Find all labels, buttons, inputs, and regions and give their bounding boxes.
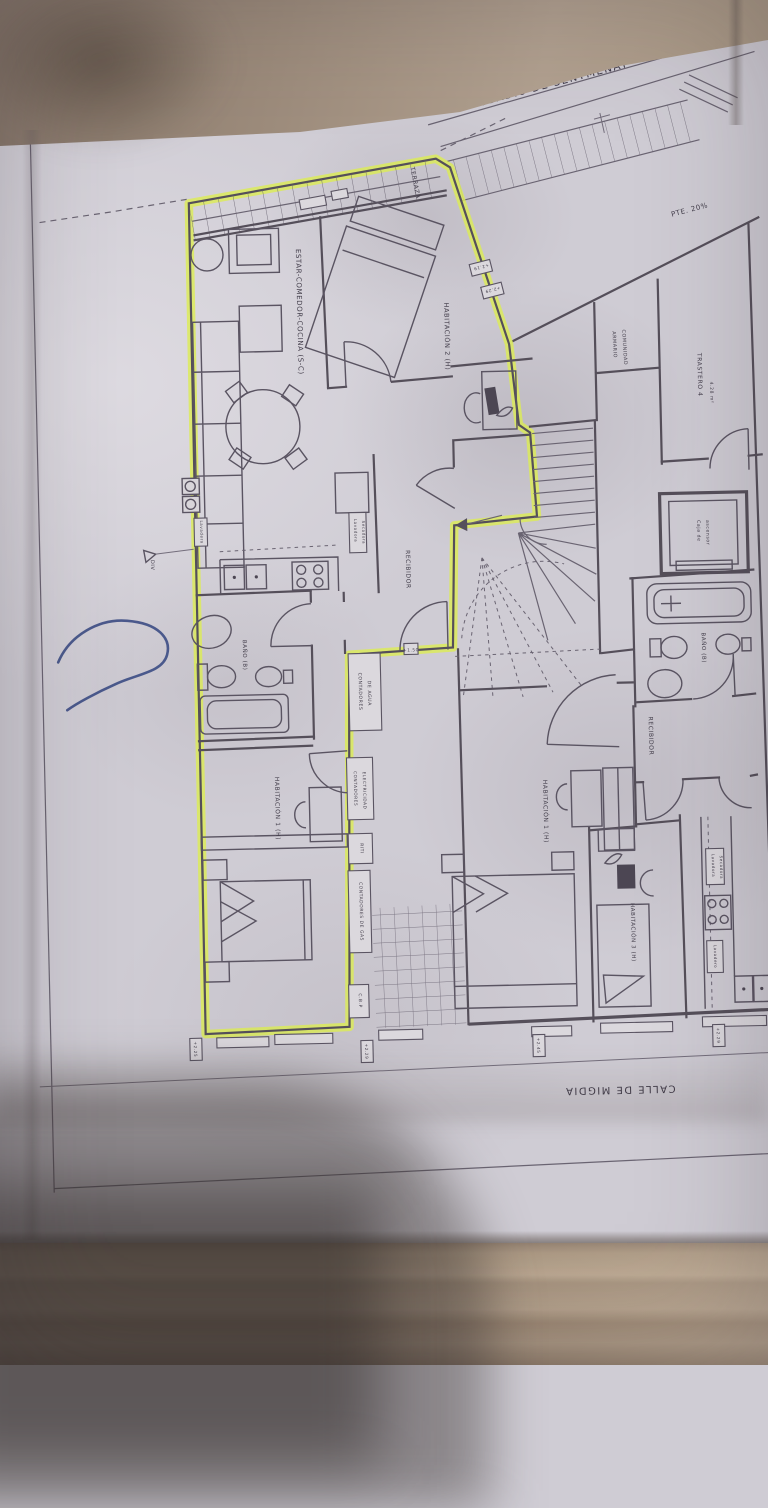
bed1-right-frame [452,874,577,1009]
label-ramp-slope: PTE. 20% [670,201,709,218]
armchair-seat [237,234,272,265]
label-washer2-left: Secadora [361,521,367,545]
chair-bedroom1-right [556,784,568,810]
bath-sink-right [648,669,683,698]
plan-sheet: PASSADIU DE SENTMENAT PTE. 20% TERRAZA [16,31,768,1192]
chair-bedroom1-left [294,802,306,828]
label-water2: DE AGUA [366,681,373,707]
chair-bedroom2 [464,393,481,423]
burner [708,900,716,908]
coffee-table [239,305,282,352]
label-water1: CONTADORES [357,672,364,710]
label-living: ESTAR-COMEDOR-COCINA (S-C) [294,249,305,375]
paper-crease-right [728,0,744,125]
vestibule-tiles [372,903,467,1028]
label-hall-left: RECIBIDOR [404,550,412,589]
bidet-right [716,634,740,655]
label-elec2: ELECTRICIDAD [362,771,368,809]
label-laundry-right: Lavadero [713,945,719,968]
label-washer1-left: Lavadora [353,519,359,542]
bed1-left-edge [303,880,305,960]
right-bath-north-wall [630,570,753,579]
burner [297,578,306,587]
threshold [217,1037,269,1048]
door-right-apt-entry [546,675,620,749]
label-washer1-right: Lavadora [711,854,717,877]
bed3-pillow [603,974,644,1003]
bedroom3-walls [589,815,687,1021]
kitchen-counter [220,557,339,594]
leaf-decor-bedroom3 [605,854,622,864]
burner [720,915,728,923]
label-closet1: ARMARIO [610,331,618,358]
elevator-car [669,500,738,566]
utility-column: CONTADORES DE AGUA CONTADORES ELECTRICID… [341,649,469,1029]
label-bath-left: BAÑO (B) [241,640,249,671]
threshold [702,1015,766,1026]
hall-right-south-wall [637,775,757,783]
burner [314,578,323,587]
nightstand-right [552,852,574,870]
label-bedroom1-left: HABITACIÓN 1 (H) [273,777,281,840]
label-laundry-left: Lavadero [199,520,205,543]
wall-shadow-corner [0,0,230,150]
label-storage: TRASTERO 4 [695,352,703,397]
label-washer2-right: Secadora [719,856,725,880]
threshold [601,1022,673,1034]
burner [720,899,728,907]
sink-drain [233,576,236,579]
dining-chair [229,448,251,469]
toilet-left [207,665,235,688]
right-apartment: BAÑO (B) RECIBIDOR HABITACIÓN 1 (H) [435,569,768,1024]
kitchen-right-cabinet-dash [708,817,712,1009]
bed1-left-frame [220,880,312,962]
east-exterior-wall [748,223,768,1011]
stair-lower-arc-dashed [460,561,566,638]
bed2-pillow-line [343,250,424,278]
closet-walls [453,435,531,467]
stair-treads [532,428,595,517]
sink-drain [255,575,258,578]
burner [708,916,716,924]
label-elevator2: ascensor [704,520,711,546]
label-bath-right: BAÑO (B) [700,632,708,663]
dining-chair [285,448,307,469]
bathtub-inner-left [207,699,282,729]
wall-bath-corridor [311,591,314,739]
dining-chair [282,385,304,406]
label-div-marker: DIV [149,560,155,571]
door-closet [416,468,455,509]
wall-kitchen-hall [374,455,379,592]
label-bedroom2: HABITACIÓN 2 (H) [442,302,453,370]
kitchen-right: Lavadora Secadora Lavadero [701,815,768,1008]
bedroom1-right: HABITACIÓN 1 (H) [440,767,638,1008]
label-marker-hall: +1.50 [403,647,419,652]
bathtub-tap-right [661,595,681,611]
bathroom-right: BAÑO (B) [646,582,754,698]
closet-storage-walls [594,280,662,465]
label-elec1: CONTADORES [353,771,359,806]
desk-nook-wall [451,359,531,367]
label-bedroom3: HABITACIÓN 3 (H) [629,903,637,962]
bed1-right-blanket [455,984,577,987]
wall-kitchen-bath [197,591,311,596]
bidet-tap-right [742,638,751,651]
chair-arc-bedroom3 [640,870,654,896]
electric-meter-box [346,757,373,820]
burner [297,565,306,574]
side-table [191,239,224,272]
laptop-bedroom2 [484,387,499,415]
label-elevator1: Caja de [695,520,701,542]
door-bath-right [692,654,735,699]
threshold [379,1029,423,1040]
bedroom1-left: HABITACIÓN 1 (H) [200,775,351,982]
pen-squiggle [57,620,169,711]
label-cbp: C.B.P [357,993,363,1008]
plot-boundary-dash-a [440,117,509,151]
label-storage-area: 4.28 m² [708,382,714,404]
sink-drain [760,987,763,990]
corner-shadow [0,1185,380,1465]
stairwell [450,420,601,700]
threshold [275,1033,333,1044]
bidet-tap-left [283,670,292,683]
stair-winders [518,524,598,641]
door-bedroom3-right [643,779,684,820]
bed1-left-pillows [220,881,256,942]
water-meter-box [348,653,382,731]
bedroom3-right: HABITACIÓN 3 (H) [595,828,656,1007]
kitchen-right-counter [701,816,735,1009]
label-hall-right: RECIBIDOR [647,717,655,756]
nightstand-right [442,854,464,872]
communal-core: ARMARIO COMUNIDAD TRASTERO 4 4.28 m² Caj… [592,223,768,1015]
door-bedroom2 [344,341,391,387]
stair-lower-flight-dashed [460,556,583,701]
div-marker-line [156,549,194,554]
burner [314,565,323,574]
label-bedroom1-right: HABITACIÓN 1 (H) [541,780,549,843]
ramp-lower-wall [510,217,761,341]
bathtub-inner-right [654,588,745,618]
label-riti: RITI [358,843,364,854]
upper-cabinets-dash [220,545,338,552]
door-storage [709,429,749,471]
right-bath-west-wall [600,578,635,707]
sink-drain [742,987,745,990]
label-closet2: COMUNIDAD [620,329,628,365]
label-marker-b4: +2.29 [716,1028,721,1044]
plot-boundary-dash-b [38,199,187,222]
dining-chair [226,381,248,402]
kitchen-left: Lavadora Secadora Lavadero [182,472,371,594]
toilet-right [661,636,687,659]
right-apt-north-wall [461,682,633,690]
living-furniture [190,228,309,568]
door-kitchen-right [719,778,752,809]
bidet-left [255,666,281,687]
door-bath-left [270,604,312,647]
chair-dark-bedroom3 [617,864,636,888]
toilet-tank-right [650,639,661,657]
ramp-hatch-band [446,100,701,202]
wall-corridor-hall [344,593,345,653]
fridge [335,472,369,513]
stair-section-line [455,649,600,656]
wall-bath-bedroom1 [199,737,314,751]
desk-bedroom1-right [571,770,602,827]
wardrobe-rail [618,768,620,850]
